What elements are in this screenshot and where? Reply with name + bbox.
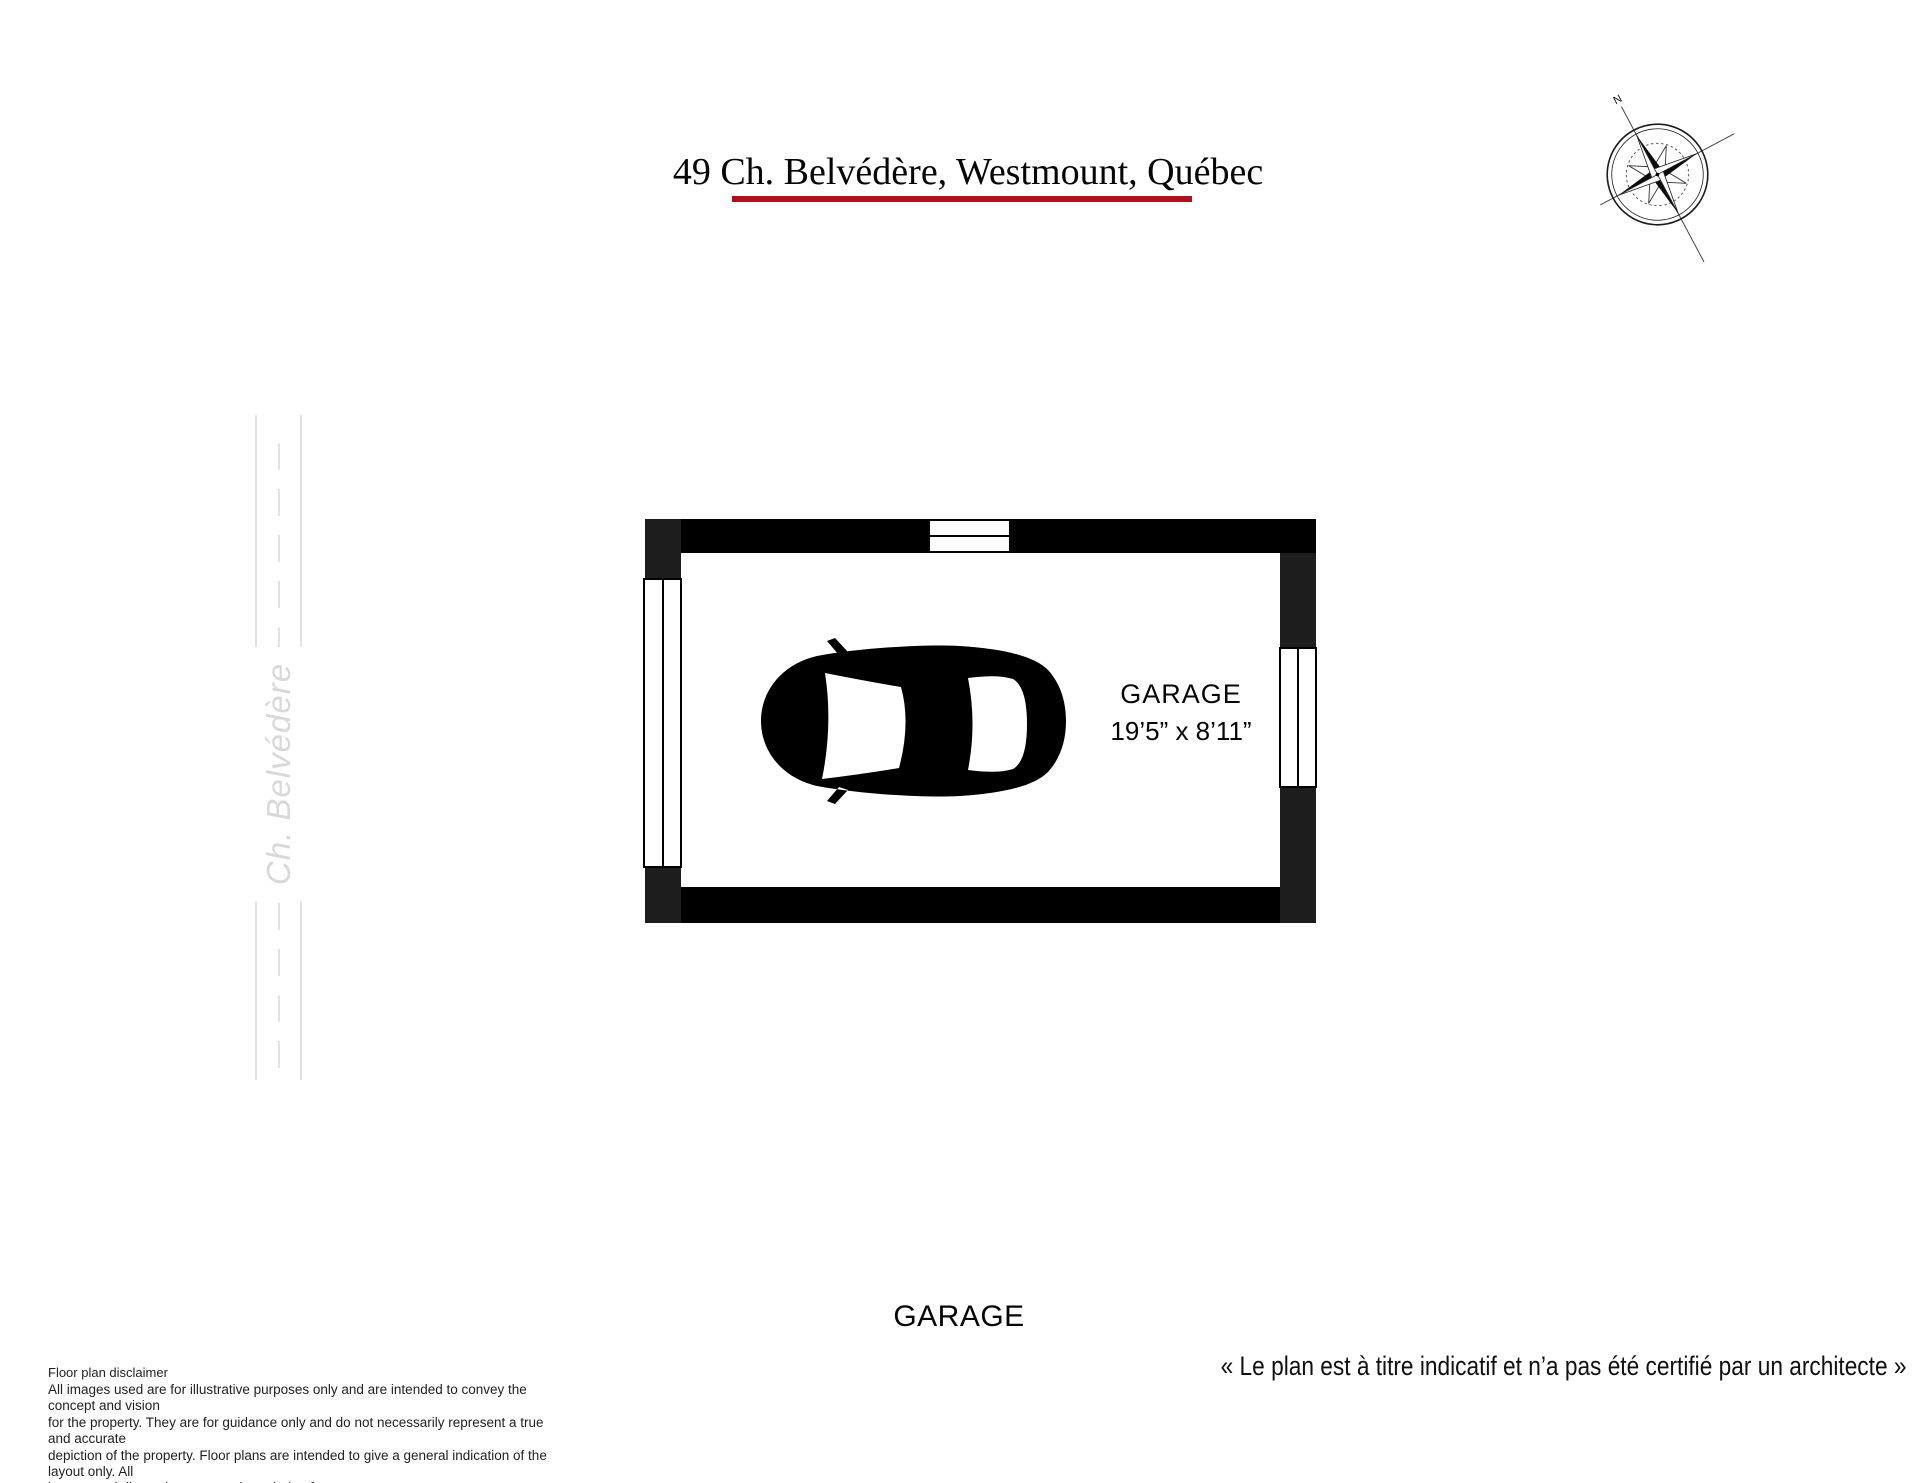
garage-door-midline bbox=[929, 535, 1010, 537]
window-right-symbol bbox=[1279, 647, 1317, 788]
room-label-block: GARAGE 19’5” x 8’11” bbox=[1110, 679, 1251, 747]
title-underline bbox=[732, 196, 1192, 202]
disclaimer-title: Floor plan disclaimer bbox=[48, 1365, 558, 1380]
disclaimer-text: All images used are for illustrative pur… bbox=[48, 1382, 558, 1483]
window-right-midline bbox=[1297, 648, 1299, 787]
certification-note: « Le plan est à titre indicatif et n’a p… bbox=[1220, 1351, 1906, 1382]
window-left-midline bbox=[662, 579, 664, 867]
wall-left-top bbox=[645, 519, 681, 578]
room-name-label: GARAGE bbox=[1110, 679, 1251, 710]
compass-rose-icon: N bbox=[1565, 82, 1750, 267]
wall-bottom bbox=[645, 887, 1316, 923]
page-title: 49 Ch. Belvédère, Westmount, Québec bbox=[673, 150, 1263, 194]
car-top-view-icon bbox=[755, 637, 1067, 805]
floor-plan-page: 49 Ch. Belvédère, Westmount, Québec N Ch… bbox=[0, 0, 1920, 1483]
floor-plan: GARAGE 19’5” x 8’11” bbox=[645, 519, 1316, 923]
wall-left-bottom bbox=[645, 868, 681, 923]
disclaimer-block: Floor plan disclaimer All images used ar… bbox=[48, 1365, 558, 1483]
room-dimensions-label: 19’5” x 8’11” bbox=[1110, 716, 1251, 747]
floor-title-label: GARAGE bbox=[893, 1300, 1024, 1334]
road: Ch. Belvédère bbox=[255, 415, 302, 1080]
window-left-symbol bbox=[643, 578, 682, 868]
wall-right-top bbox=[1280, 553, 1316, 647]
compass-north-label: N bbox=[1612, 93, 1625, 107]
wall-right-bottom bbox=[1280, 788, 1316, 923]
street-name-label: Ch. Belvédère bbox=[254, 647, 304, 901]
garage-door-symbol bbox=[928, 519, 1011, 553]
